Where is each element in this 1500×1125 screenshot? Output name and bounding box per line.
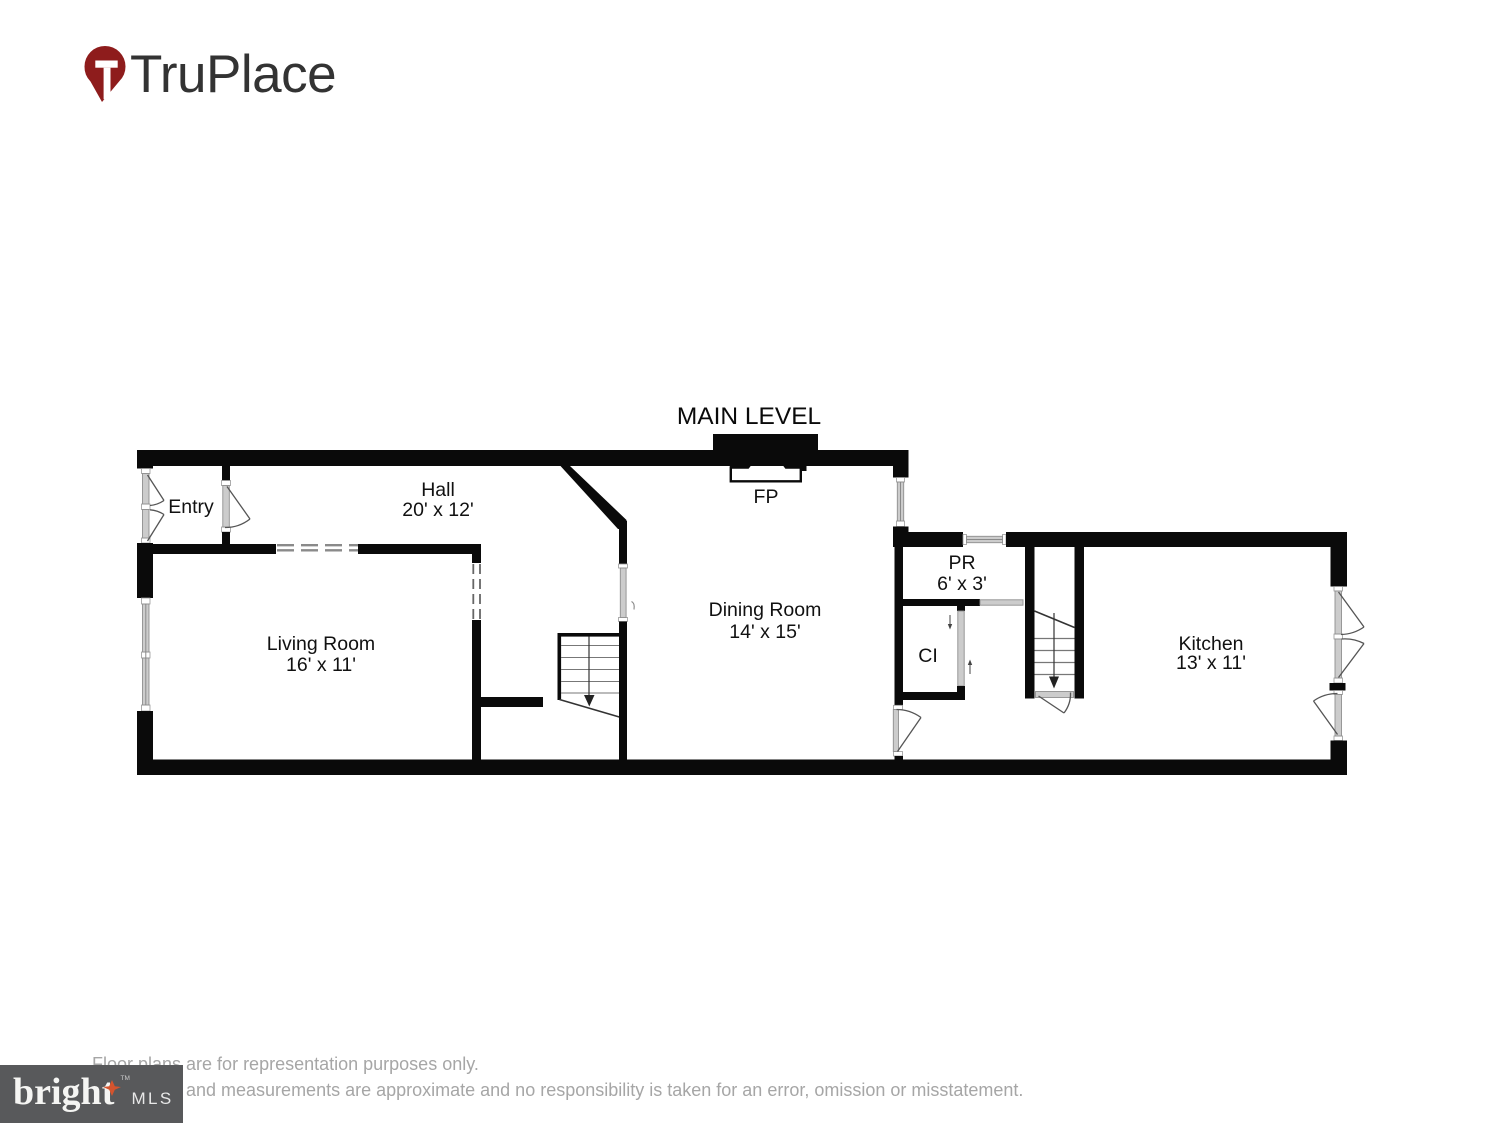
svg-text:TM: TM — [121, 1075, 130, 1082]
svg-text:PR: PR — [948, 552, 975, 574]
svg-text:bright: bright — [13, 1071, 115, 1113]
svg-text:20' x 12': 20' x 12' — [402, 499, 473, 521]
svg-text:16' x 11': 16' x 11' — [286, 654, 356, 676]
svg-text:13' x 11': 13' x 11' — [1176, 652, 1246, 674]
svg-text:Living Room: Living Room — [267, 633, 375, 655]
svg-text:CI: CI — [918, 645, 938, 667]
svg-text:MAIN LEVEL: MAIN LEVEL — [677, 403, 821, 430]
svg-text:6' x 3': 6' x 3' — [937, 573, 987, 595]
svg-text:14' x 15': 14' x 15' — [729, 621, 800, 643]
svg-text:Entry: Entry — [168, 496, 214, 518]
svg-text:MLS: MLS — [132, 1089, 174, 1108]
svg-text:FP: FP — [754, 486, 779, 508]
svg-text:TruPlace: TruPlace — [130, 45, 336, 104]
svg-text:Hall: Hall — [421, 479, 455, 501]
svg-text:and measurements are approxima: and measurements are approximate and no … — [186, 1080, 1023, 1100]
svg-text:Dining Room: Dining Room — [709, 599, 822, 621]
